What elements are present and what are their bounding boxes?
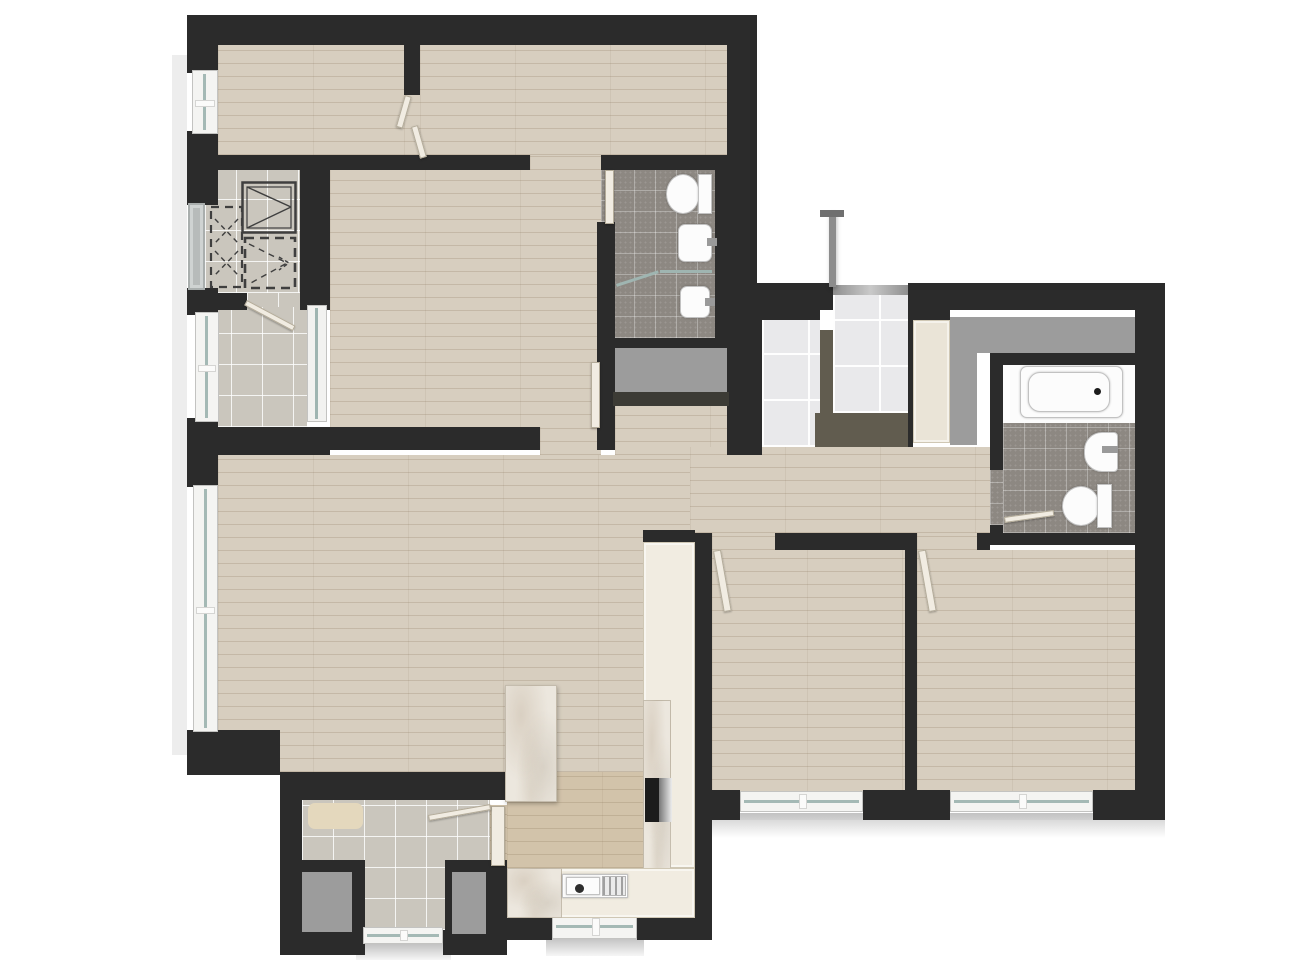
- kitchen-island-marble: [505, 685, 557, 802]
- sink2-faucet: [1102, 446, 1118, 453]
- entry-wardrobe-cabinet: [913, 320, 950, 443]
- kitchen-oven: [645, 778, 659, 822]
- laundry-niche-mat-right: [452, 872, 486, 934]
- kitchen-sink-drainer: [602, 876, 626, 896]
- bathtub-faucet: [1094, 388, 1101, 395]
- kitchen-counter-marble-left: [507, 868, 562, 918]
- fixtures: [0, 0, 1300, 975]
- floor-plan: [0, 0, 1300, 975]
- kitchen-faucet: [575, 884, 584, 893]
- bidet1-faucet: [705, 298, 715, 306]
- toilet2-bowl: [1062, 486, 1100, 526]
- shower-tray-icon: [241, 181, 297, 234]
- toilet1-bowl: [666, 174, 700, 214]
- wardrobe-tall-icon: [209, 205, 244, 289]
- toilet1-tank: [698, 174, 712, 214]
- sink1-faucet: [707, 238, 717, 246]
- laundry-niche-mat-left: [302, 872, 352, 932]
- laundry-shelf: [308, 803, 363, 829]
- toilet2-tank: [1097, 484, 1112, 528]
- wardrobe-square-icon: [243, 236, 297, 290]
- kitchen-oven-panel: [659, 778, 672, 822]
